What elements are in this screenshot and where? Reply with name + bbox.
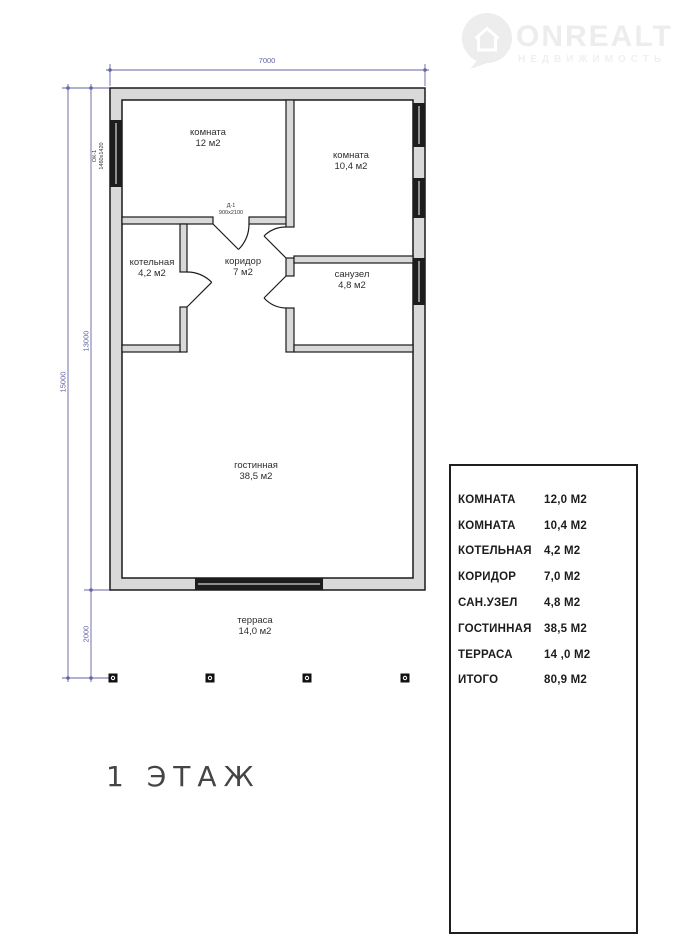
legend-room-area: 10,4 М2 — [544, 520, 587, 532]
interior-walls — [122, 100, 413, 352]
legend-row: ТЕРРАСА 14 ,0 М2 — [451, 642, 636, 668]
terrace-post — [303, 674, 312, 683]
room-label-terrace-name: терраса — [237, 615, 273, 626]
door-tag-size: 900х2100 — [219, 210, 243, 216]
terrace-post — [109, 674, 118, 683]
window-tag-size: 1460х1420 — [99, 142, 105, 169]
room-label-living-area: 38,5 м2 — [240, 471, 273, 482]
dim-extensions-top — [110, 64, 425, 86]
dim-text-left-outer: 15000 — [59, 372, 68, 393]
floor-title: 1 ЭТАЖ — [106, 760, 261, 793]
wall-sanuzel-top — [294, 256, 413, 263]
door-room2 — [264, 227, 286, 258]
wall-boiler-right-upper — [180, 224, 187, 272]
door-tag-code: Д-1 — [227, 203, 236, 209]
room-label-komnata1-area: 12 м2 — [195, 138, 220, 149]
room-label-boiler-name: котельная — [130, 257, 175, 268]
legend-row: КОРИДОР 7,0 М2 — [451, 564, 636, 590]
wall-room1-bottom-right — [249, 217, 290, 224]
legend-row: САН.УЗЕЛ 4,8 М2 — [451, 590, 636, 616]
legend-room-name: КОМНАТА — [451, 520, 544, 532]
legend-row: КОМНАТА 12,0 М2 — [451, 487, 636, 513]
terrace-post — [401, 674, 410, 683]
legend-room-area: 12,0 М2 — [544, 494, 587, 506]
legend-room-name: КОМНАТА — [451, 494, 544, 506]
legend-room-area: 4,2 М2 — [544, 545, 580, 557]
room-label-corridor-name: коридор — [225, 256, 261, 267]
legend-room-area: 7,0 М2 — [544, 571, 580, 583]
door-corridor — [213, 224, 249, 250]
door-sanuzel — [264, 276, 286, 308]
window-tag-code: ОК-1 — [92, 150, 98, 162]
wall-room2-left-mid — [286, 258, 294, 276]
terrace-posts — [109, 674, 410, 683]
legend-room-name: КОРИДОР — [451, 571, 544, 583]
wall-room2-left-upper — [286, 100, 294, 227]
legend-room-name: КОТЕЛЬНАЯ — [451, 545, 544, 557]
legend-row: КОМНАТА 10,4 М2 — [451, 513, 636, 539]
legend-row: ИТОГО 80,9 М2 — [451, 668, 636, 694]
legend-row: ГОСТИННАЯ 38,5 М2 — [451, 616, 636, 642]
room-label-terrace-area: 14,0 м2 — [239, 626, 272, 637]
room-label-komnata2-name: комната — [333, 150, 370, 161]
legend-room-name: САН.УЗЕЛ — [451, 597, 544, 609]
outer-walls — [110, 88, 425, 590]
legend-table: КОМНАТА 12,0 М2 КОМНАТА 10,4 М2 КОТЕЛЬНА… — [449, 464, 638, 934]
legend-room-name: ГОСТИННАЯ — [451, 623, 544, 635]
legend-total-label: ИТОГО — [451, 674, 544, 686]
legend-room-area: 38,5 М2 — [544, 623, 587, 635]
wall-sanuzel-left — [286, 308, 294, 352]
room-labels: комната 12 м2 комната 10,4 м2 котельная … — [130, 127, 370, 637]
room-label-corridor-area: 7 м2 — [233, 267, 253, 278]
room-label-sanuzel-area: 4,8 м2 — [338, 280, 366, 291]
room-label-living-name: гостинная — [234, 460, 278, 471]
dim-extensions-left — [62, 88, 110, 678]
legend-room-area: 14 ,0 М2 — [544, 649, 590, 661]
dim-text-left-inner: 13000 — [82, 331, 91, 352]
wall-sanuzel-bottom — [294, 345, 413, 352]
wall-room1-bottom-left — [122, 217, 213, 224]
legend-row: КОТЕЛЬНАЯ 4,2 М2 — [451, 539, 636, 565]
room-label-boiler-area: 4,2 м2 — [138, 268, 166, 279]
terrace-post — [206, 674, 215, 683]
dim-text-terrace-depth: 2000 — [82, 626, 91, 643]
legend-room-area: 4,8 М2 — [544, 597, 580, 609]
room-label-komnata2-area: 10,4 м2 — [335, 161, 368, 172]
room-label-sanuzel-name: санузел — [335, 269, 370, 280]
dim-text-top-width: 7000 — [259, 56, 276, 65]
wall-boiler-bottom — [122, 345, 180, 352]
room-label-komnata1-name: комната — [190, 127, 227, 138]
legend-total-area: 80,9 М2 — [544, 674, 587, 686]
door-boiler — [187, 272, 212, 307]
legend-room-name: ТЕРРАСА — [451, 649, 544, 661]
wall-boiler-right-lower — [180, 307, 187, 352]
